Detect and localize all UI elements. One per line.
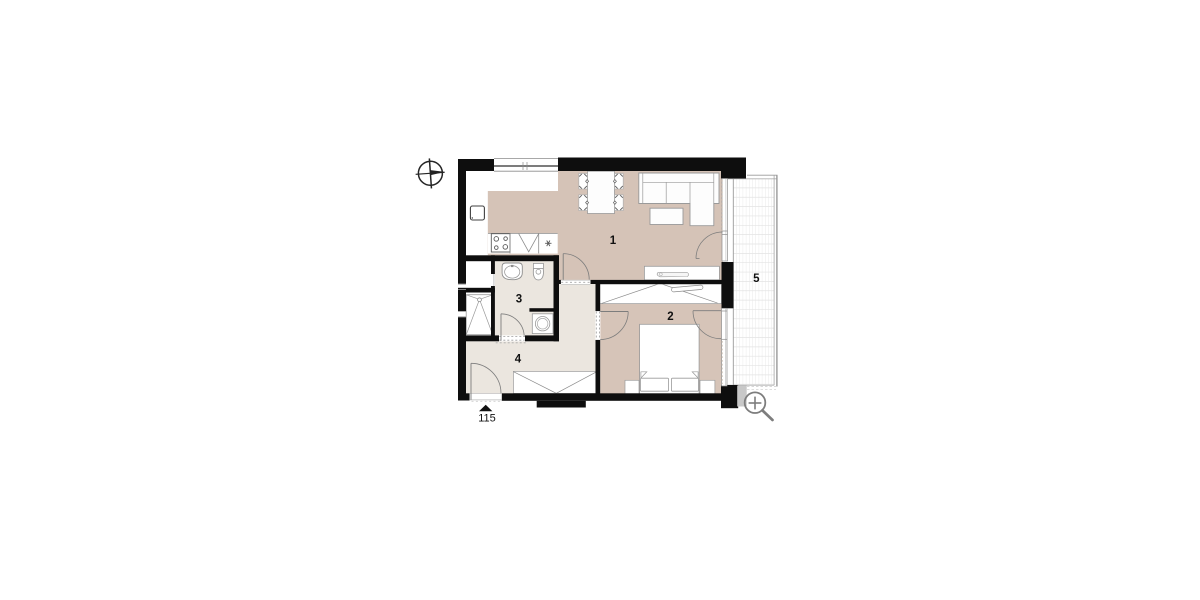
svg-text:115: 115 — [478, 413, 496, 425]
svg-text:5: 5 — [753, 273, 760, 285]
svg-text:4: 4 — [515, 354, 522, 366]
svg-text:1: 1 — [610, 235, 617, 247]
svg-text:2: 2 — [667, 311, 673, 323]
svg-text:3: 3 — [516, 293, 522, 305]
